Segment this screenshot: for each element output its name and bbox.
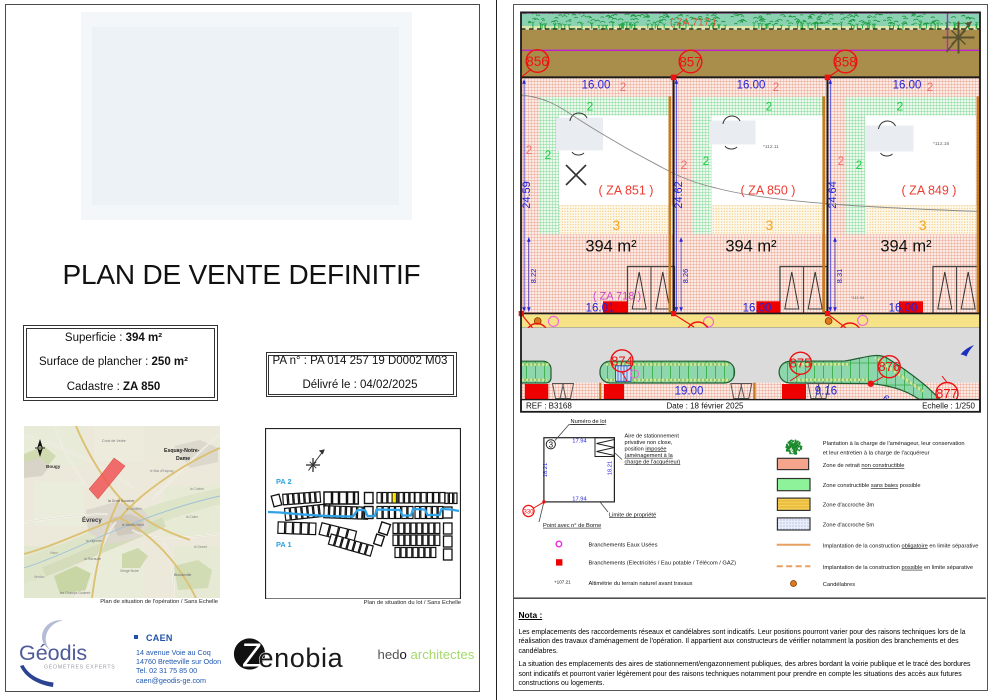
svg-text:3: 3 [612,217,620,233]
svg-text:REF : B3168: REF : B3168 [526,402,572,411]
svg-text:charge de l'acquéreur): charge de l'acquéreur) [625,459,681,465]
svg-text:Zone constructible sans baies: Zone constructible sans baies possible [823,483,921,489]
svg-text:( ZA 851 ): ( ZA 851 ) [599,184,654,198]
svg-text:Implantation de la constructio: Implantation de la construction obligato… [823,543,979,549]
svg-text:Echelle : 1/250: Echelle : 1/250 [922,402,975,411]
svg-text:Verdun: Verdun [34,575,45,579]
svg-text:*112.16: *112.16 [933,141,950,147]
svg-text:Zone de retrait non constructi: Zone de retrait non constructible [823,463,905,469]
svg-text:876: 876 [878,359,900,374]
svg-text:Plantation à la charge de l'am: Plantation à la charge de l'aménageur, l… [823,441,965,447]
svg-text:2: 2 [681,158,688,172]
svg-text:3: 3 [919,217,927,233]
svg-text:la Vendière: la Vendière [126,507,142,511]
svg-text:2: 2 [897,100,904,114]
svg-text:le Dézert: le Dézert [194,545,207,549]
svg-text:Altimétrie du terrain naturel: Altimétrie du terrain naturel avant trav… [589,581,693,587]
svg-text:18.21: 18.21 [608,461,614,476]
svg-text:2: 2 [526,143,533,157]
svg-text:330: 330 [523,510,534,516]
svg-text:857: 857 [679,55,702,70]
svg-text:*112.11: *112.11 [763,144,779,150]
svg-text:2: 2 [766,100,773,114]
svg-text:Date : 18 février 2025: Date : 18 février 2025 [667,402,744,411]
svg-text:Évrecy: Évrecy [82,516,102,524]
svg-text:2: 2 [773,80,780,94]
svg-text:16.00: 16.00 [893,80,922,92]
svg-text:position imposée: position imposée [625,446,667,452]
svg-text:la Rivraude: la Rivraude [84,557,101,561]
svg-text:Dame: Dame [176,456,190,462]
svg-text:394 m²: 394 m² [725,238,777,256]
svg-text:2: 2 [703,154,710,168]
svg-text:2: 2 [856,158,863,172]
svg-text:la Croix Boucher: la Croix Boucher [108,499,135,503]
svg-text:Zone d'accroche 3m: Zone d'accroche 3m [823,503,875,509]
svg-text:Aire de stationnement: Aire de stationnement [625,434,680,440]
svg-text:8.26: 8.26 [681,269,690,284]
svg-text:Limite de propriété: Limite de propriété [609,512,656,518]
svg-text:8.22: 8.22 [529,269,538,284]
svg-text:et leur entretien à la charge: et leur entretien à la charge de l'acqué… [823,450,930,456]
svg-text:Point avec n° de Borne: Point avec n° de Borne [543,523,601,529]
svg-text:les Champs Goubert: les Champs Goubert [60,591,90,595]
svg-text:875: 875 [790,356,812,371]
svg-text:3: 3 [549,440,554,449]
svg-text:16.00: 16.00 [737,80,766,92]
svg-text:la Caine: la Caine [186,515,198,519]
svg-text:privative non close,: privative non close, [625,440,673,446]
svg-text:PA 1: PA 1 [276,540,292,549]
svg-text:Candélabres: Candélabres [823,582,855,588]
svg-text:874: 874 [611,353,633,368]
svg-text:17.94: 17.94 [572,439,587,445]
svg-text:18.21: 18.21 [543,463,549,478]
svg-text:Numéro de lot: Numéro de lot [571,419,607,425]
svg-text:Croix de Vedre: Croix de Vedre [102,439,126,443]
svg-text:PA 2: PA 2 [276,477,292,486]
svg-text:( ZA 717 ): ( ZA 717 ) [670,17,716,29]
svg-text:Branchements Eaux Usées: Branchements Eaux Usées [589,542,658,548]
svg-text:Vieux: Vieux [50,551,58,555]
svg-text:la Coterie: la Coterie [190,487,204,491]
svg-text:le Bas d'Esquay: le Bas d'Esquay [150,469,174,473]
svg-text:Blondeville: Blondeville [174,573,191,577]
svg-text:16.00: 16.00 [582,80,611,92]
svg-text:3: 3 [766,217,774,233]
svg-text:858: 858 [834,55,857,70]
svg-text:enobia: enobia [259,643,344,673]
svg-text:*111.94: *111.94 [851,295,865,300]
svg-text:2: 2 [927,80,934,94]
svg-text:Géodis: Géodis [19,641,87,665]
svg-text:394 m²: 394 m² [880,238,932,256]
svg-text:2: 2 [545,148,552,162]
svg-text:2: 2 [587,100,594,114]
svg-text:17.94: 17.94 [572,497,587,503]
svg-text:Zone d'accroche 5m: Zone d'accroche 5m [823,523,875,529]
svg-text:Branchements (Electricités / E: Branchements (Electricités / Eau potable… [589,560,737,566]
svg-text:24.59: 24.59 [521,181,533,209]
svg-text:2: 2 [838,154,845,168]
svg-text:8.31: 8.31 [835,269,844,284]
svg-text:877: 877 [936,386,958,401]
svg-text:Bougy: Bougy [46,464,61,469]
svg-text:le Moulin Neuf: le Moulin Neuf [122,523,144,527]
svg-text:GÉOMÈTRES EXPERTS: GÉOMÈTRES EXPERTS [44,664,115,671]
svg-text:( ZA 850 ): ( ZA 850 ) [741,184,796,198]
svg-text:( ZA 849 ): ( ZA 849 ) [902,184,957,198]
svg-text:Implantation de la constructio: Implantation de la construction possible… [823,565,973,571]
svg-text:Esquay-Notre-: Esquay-Notre- [164,448,200,454]
svg-text:856: 856 [526,54,549,69]
svg-text:19.00: 19.00 [675,386,704,398]
svg-text:24.62: 24.62 [673,181,685,209]
svg-text:2: 2 [620,80,627,94]
svg-text:9.16: 9.16 [815,386,837,398]
svg-text:la Vignette: la Vignette [86,539,102,543]
svg-text:Vierge Noire: Vierge Noire [120,569,139,573]
svg-text:394 m²: 394 m² [585,238,637,256]
svg-text:( ZA 718 ): ( ZA 718 ) [593,291,641,303]
svg-text:+107.21: +107.21 [554,580,571,585]
svg-text:(aménagement à la: (aménagement à la [625,453,674,459]
